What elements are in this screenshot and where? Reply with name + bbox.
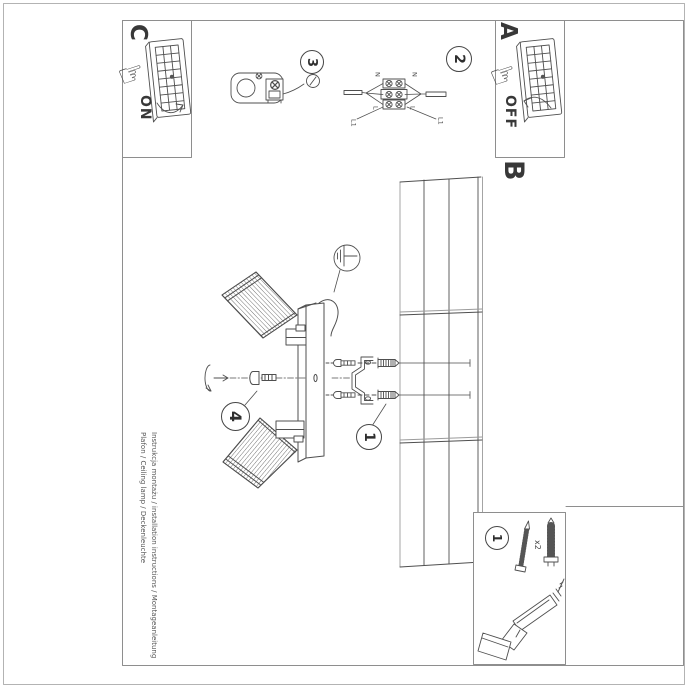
document-title-line2: Plafon / Ceiling lamp / Deckenleuchte	[137, 432, 148, 658]
upper-spotlight	[222, 272, 306, 345]
wire-label-n-right: N	[411, 72, 418, 77]
section-label-a: A	[496, 22, 519, 40]
screw-quantity-label: x2	[533, 540, 541, 550]
section-label-c: C	[126, 24, 149, 41]
drawing-frame	[123, 21, 684, 666]
screw-and-anchor-rows	[326, 358, 470, 400]
screwdriver-icon	[307, 75, 320, 88]
wire-label-n-left: N	[374, 72, 381, 77]
rotate-arrow-icon	[205, 365, 228, 391]
canopy-clamp-icon	[231, 73, 304, 103]
document-title: Instrukcja montażu / installation instru…	[137, 432, 159, 658]
adjust-screw	[230, 372, 351, 385]
ceiling-panel	[400, 177, 483, 567]
switch-state-off: OFF	[503, 95, 517, 129]
wire-label-l1-left: L1	[350, 119, 357, 127]
switch-state-on: ON	[138, 95, 152, 121]
step-2-badge: 2	[446, 46, 472, 72]
wire-label-l-left: L	[372, 106, 379, 110]
section-label-b: B	[500, 160, 527, 181]
document-title-line1: Instrukcja montażu / installation instru…	[148, 432, 159, 658]
parts-step-badge: 1	[485, 526, 509, 550]
step-3-badge: 3	[300, 50, 324, 74]
page-border	[4, 4, 685, 685]
wire-label-l1-right: L1	[437, 117, 444, 125]
step-1-badge: 1	[356, 424, 382, 450]
instruction-line-art	[0, 0, 688, 688]
terminal-block-diagram	[344, 79, 446, 119]
step-4-badge: 4	[221, 402, 250, 431]
earth-symbol-icon	[334, 245, 360, 292]
step4-leader-line	[245, 391, 257, 405]
step1-leader-line	[372, 404, 386, 426]
wire-label-l-right: L	[409, 106, 416, 110]
instruction-sheet: C ☞ ON A ☞ OFF B 3 2 4 1 1 N N L L L1 L1…	[0, 0, 688, 688]
